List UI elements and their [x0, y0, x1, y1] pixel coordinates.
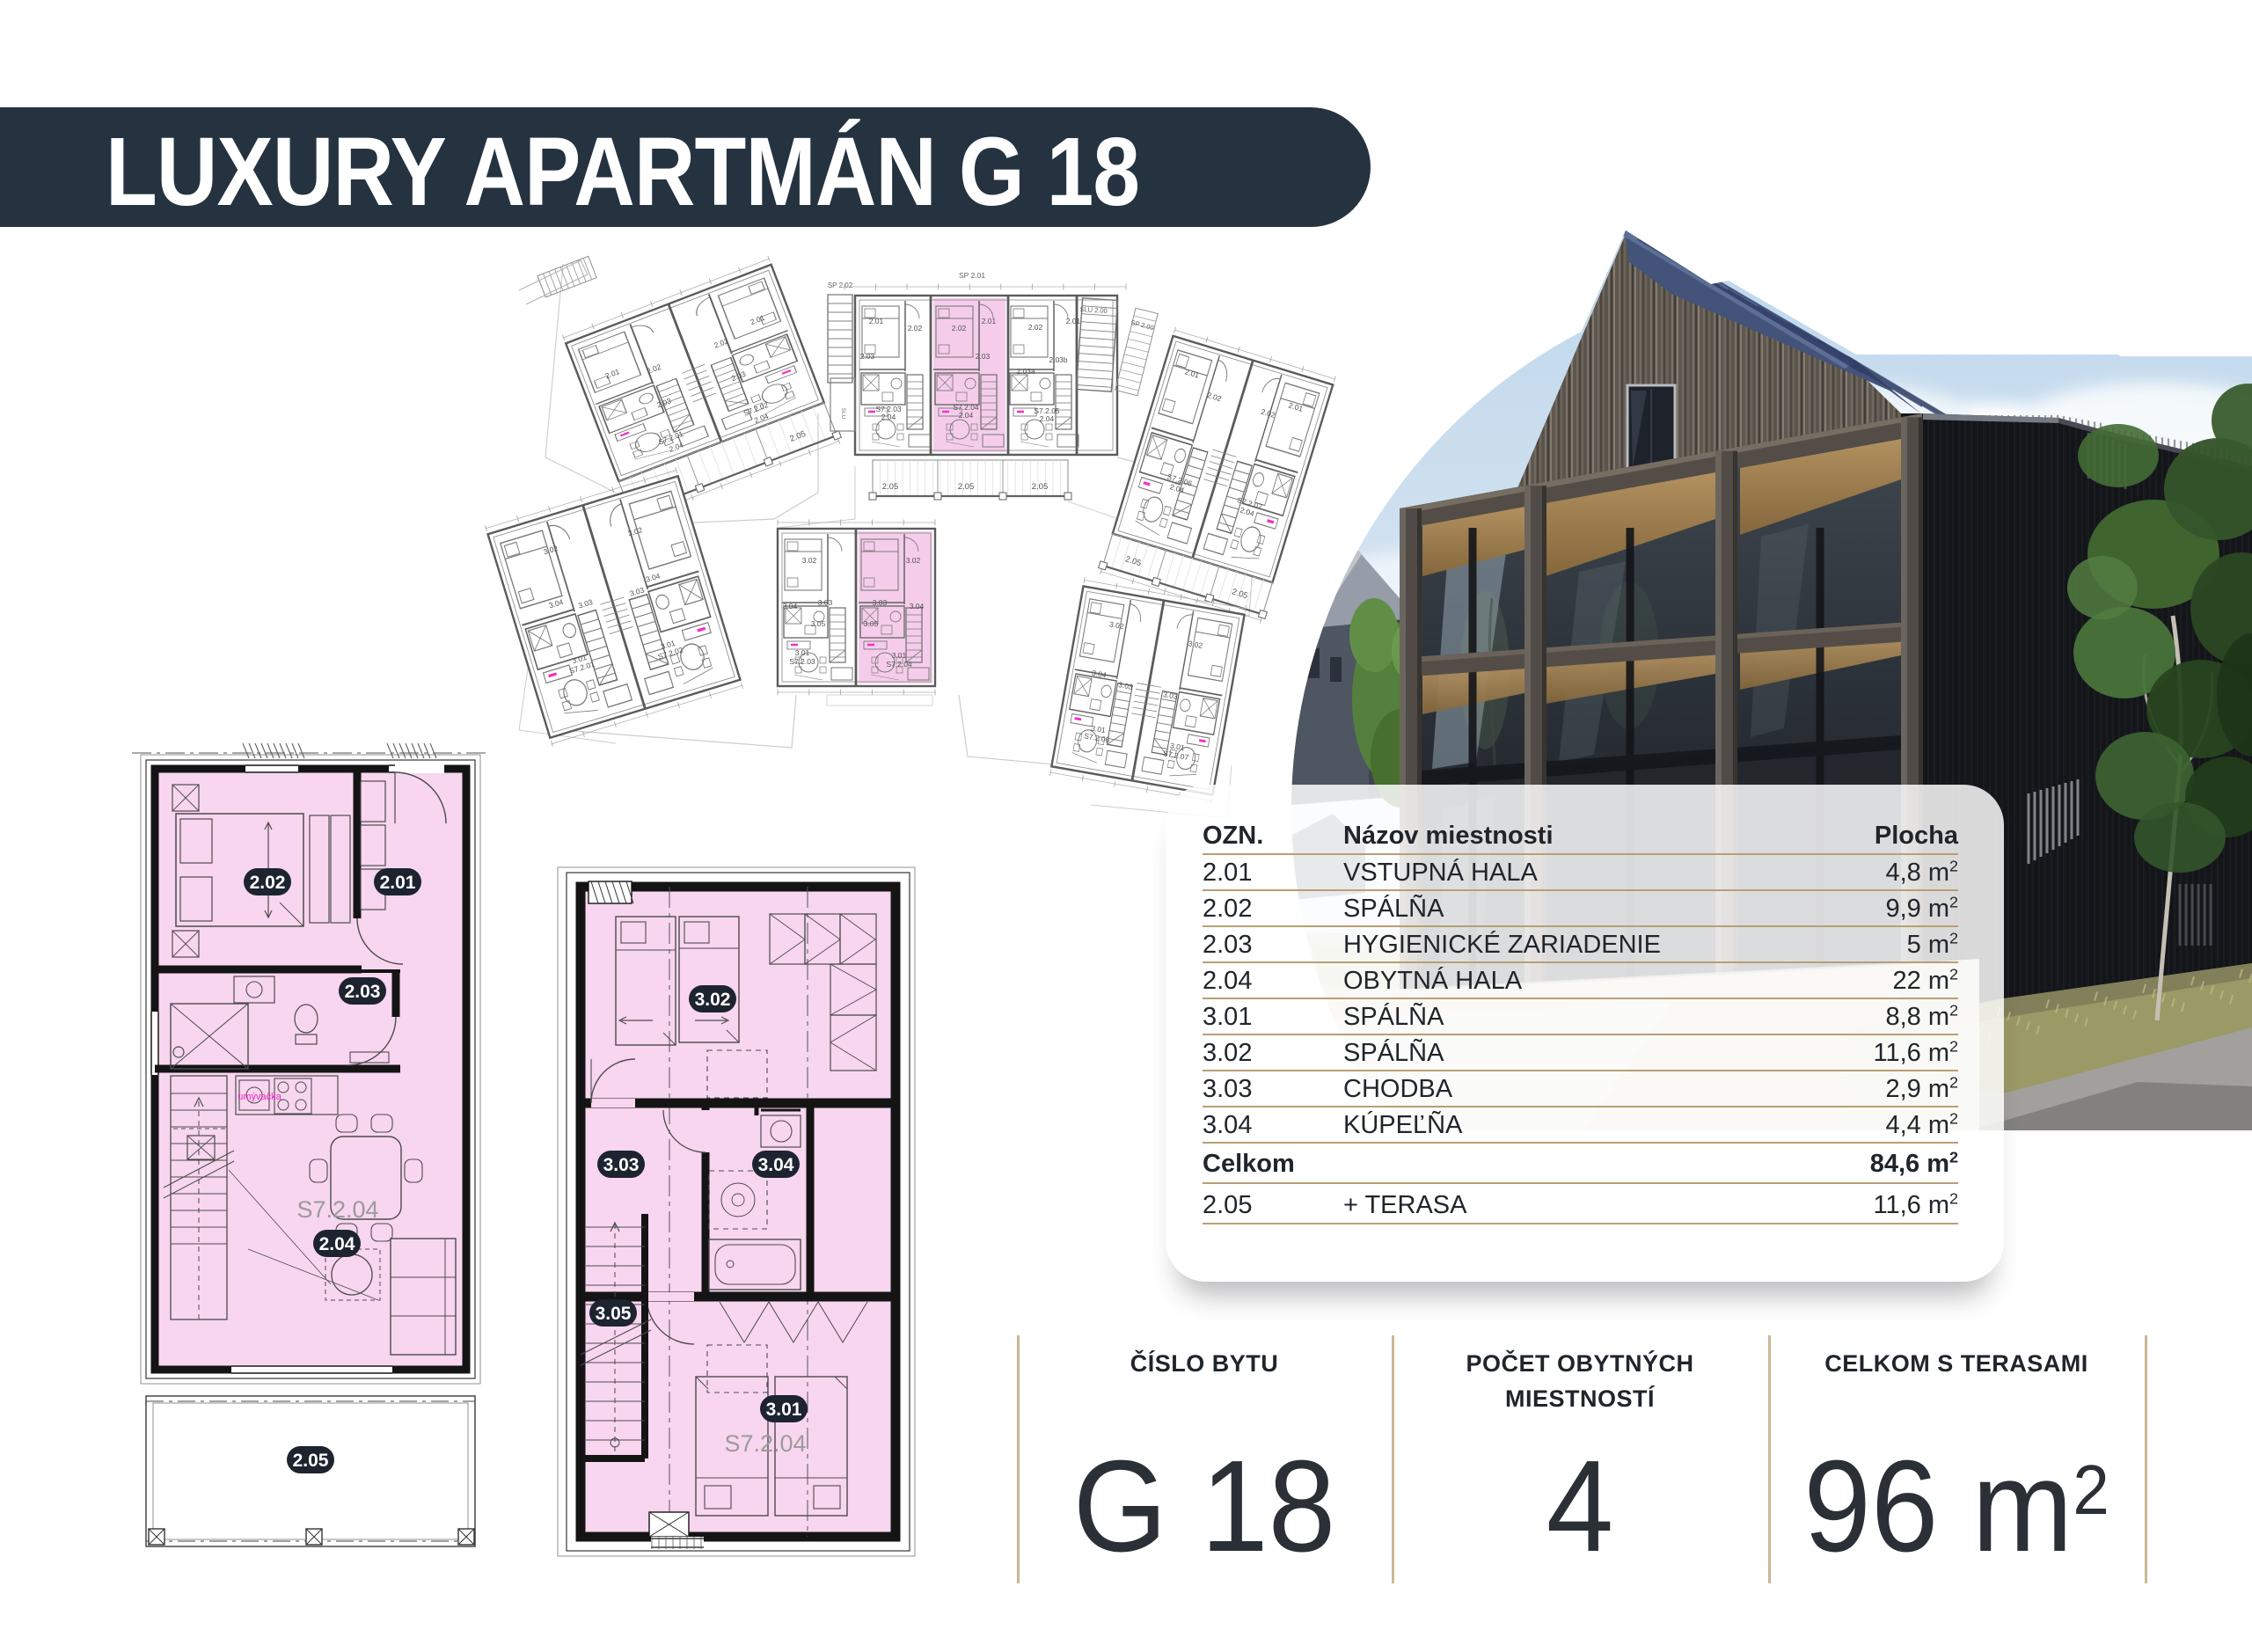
svg-text:2.01: 2.01: [1066, 317, 1081, 325]
svg-text:2.02: 2.02: [250, 873, 286, 893]
svg-text:SP 2.02: SP 2.02: [828, 281, 853, 289]
svg-text:2.01: 2.01: [982, 317, 997, 325]
svg-text:2.01: 2.01: [869, 317, 884, 325]
svg-text:2.05: 2.05: [788, 429, 807, 444]
svg-text:umývačka: umývačka: [238, 1092, 281, 1102]
svg-text:3.03: 3.03: [818, 598, 833, 607]
svg-text:2.05: 2.05: [958, 482, 975, 492]
svg-text:2.03: 2.03: [345, 982, 381, 1002]
svg-text:3.01: 3.01: [795, 648, 810, 657]
svg-text:2.05: 2.05: [882, 482, 899, 492]
svg-text:2.05: 2.05: [1032, 482, 1049, 492]
svg-text:3.03: 3.03: [873, 598, 888, 607]
svg-text:3.01: 3.01: [766, 1400, 802, 1420]
svg-text:2.03: 2.03: [976, 352, 991, 361]
svg-text:SP 2.01: SP 2.01: [959, 271, 985, 280]
svg-text:2.03: 2.03: [860, 352, 875, 361]
svg-text:3.01: 3.01: [892, 651, 907, 660]
svg-text:3.04: 3.04: [783, 602, 798, 610]
svg-text:2.05: 2.05: [293, 1451, 329, 1471]
svg-text:2.04: 2.04: [959, 411, 974, 420]
svg-text:2.03b: 2.03b: [1049, 355, 1068, 364]
svg-text:2.02: 2.02: [1028, 323, 1043, 332]
svg-text:S7.2.03: S7.2.03: [789, 657, 815, 666]
svg-text:S7.2.04: S7.2.04: [886, 660, 912, 669]
svg-text:2.02: 2.02: [952, 324, 967, 333]
svg-text:S7.2.04: S7.2.04: [724, 1430, 806, 1457]
svg-text:2.04: 2.04: [1040, 414, 1055, 423]
svg-text:3.04: 3.04: [910, 602, 925, 610]
svg-text:2.05: 2.05: [1124, 554, 1143, 568]
svg-text:2.04: 2.04: [319, 1234, 355, 1254]
svg-text:2.05: 2.05: [1231, 587, 1249, 601]
svg-text:3.02: 3.02: [695, 990, 731, 1010]
svg-text:3.04: 3.04: [758, 1155, 794, 1175]
svg-text:2.01: 2.01: [380, 873, 416, 893]
svg-text:S7.2.04: S7.2.04: [296, 1196, 378, 1223]
svg-text:2.02: 2.02: [908, 324, 923, 333]
svg-text:2.04: 2.04: [881, 413, 896, 421]
svg-text:3.05: 3.05: [811, 619, 826, 628]
svg-text:3.02: 3.02: [906, 556, 921, 565]
svg-text:3.02: 3.02: [802, 556, 817, 565]
svg-text:3.05: 3.05: [864, 619, 879, 628]
svg-text:3.03: 3.03: [603, 1155, 640, 1175]
svg-text:3.05: 3.05: [596, 1304, 632, 1324]
svg-text:2.03a: 2.03a: [1016, 367, 1035, 376]
svg-text:SLU: SLU: [840, 408, 846, 420]
